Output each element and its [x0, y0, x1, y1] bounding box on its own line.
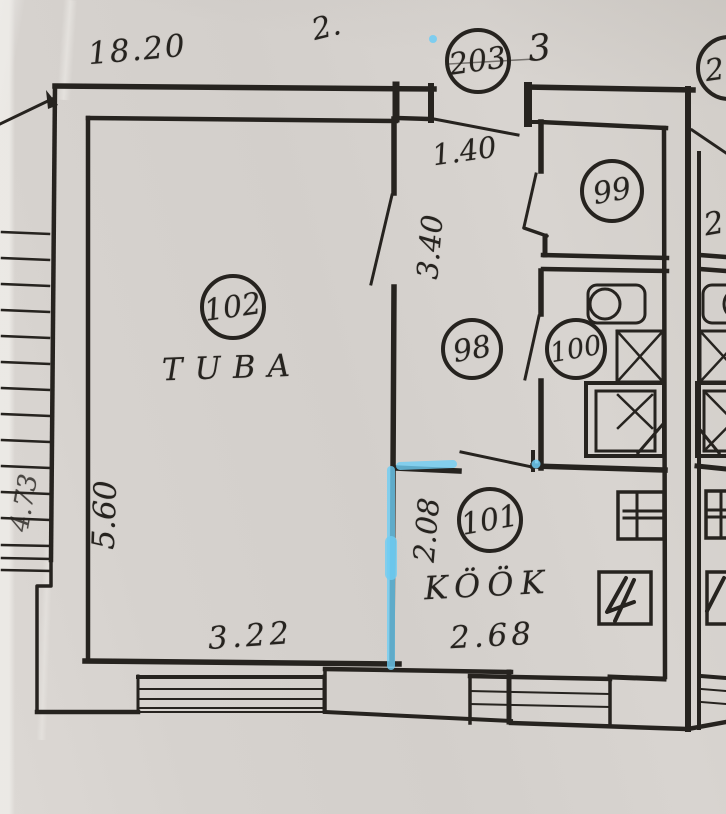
landing-edge-line-neighbor [692, 130, 726, 153]
room-number-102: 102 [202, 286, 264, 329]
room-circle-98: 98 [441, 318, 503, 380]
dim-room-depth: 5.60 [85, 459, 125, 570]
kitchen-sink-icon-neighbor [706, 491, 726, 538]
room-number-203: 203 [447, 40, 509, 83]
kitchen-sink-icon [618, 492, 664, 539]
stove-icon [599, 572, 651, 624]
room-circle-99: 99 [580, 159, 644, 223]
highlight-dot-top [429, 35, 437, 43]
room-circle-203: 203 [445, 28, 511, 94]
room-circle-102: 102 [200, 274, 266, 340]
window-symbol-tuba [138, 676, 324, 712]
room-circle-100: 100 [545, 318, 607, 380]
door-swing-kitchen-icon [461, 452, 532, 467]
washbasin-icon-neighbor [703, 285, 726, 323]
door-swing-tuba-icon [371, 195, 392, 284]
highlight-dot-kitchen [532, 460, 541, 469]
door-swing-100-icon [525, 316, 539, 379]
mark-floor: 3 [526, 27, 553, 70]
room-number-100: 100 [548, 329, 604, 368]
room-label-tuba: TUBA [161, 348, 302, 389]
room-number-98: 98 [450, 328, 494, 369]
toilet-icon [617, 331, 663, 382]
shower-icon-neighbor [697, 383, 726, 456]
plan-linework [0, 0, 726, 814]
dim-kitchen-width: 2.68 [449, 616, 536, 656]
stove-icon-neighbor [707, 572, 726, 624]
shower-icon [586, 383, 664, 456]
dim-room-width: 3.22 [207, 615, 294, 657]
room-number-101: 101 [459, 498, 521, 542]
floor-plan-scan: 102 98 99 100 101 203 2 TUBA KÖÖK 18.20 … [0, 0, 726, 814]
washbasin-icon [588, 285, 645, 323]
toilet-icon-neighbor [700, 331, 726, 382]
window-symbol-kitchen [470, 676, 664, 725]
door-swing-99-icon [524, 174, 536, 227]
room-circle-101: 101 [457, 487, 523, 553]
highlight-marker-horizontal [400, 464, 453, 466]
room-number-99: 99 [590, 170, 634, 211]
room-number-neighbor: 2 [703, 51, 726, 88]
window-symbol-neighbor [701, 676, 726, 704]
room-label-kook: KÖÖK [423, 563, 552, 608]
